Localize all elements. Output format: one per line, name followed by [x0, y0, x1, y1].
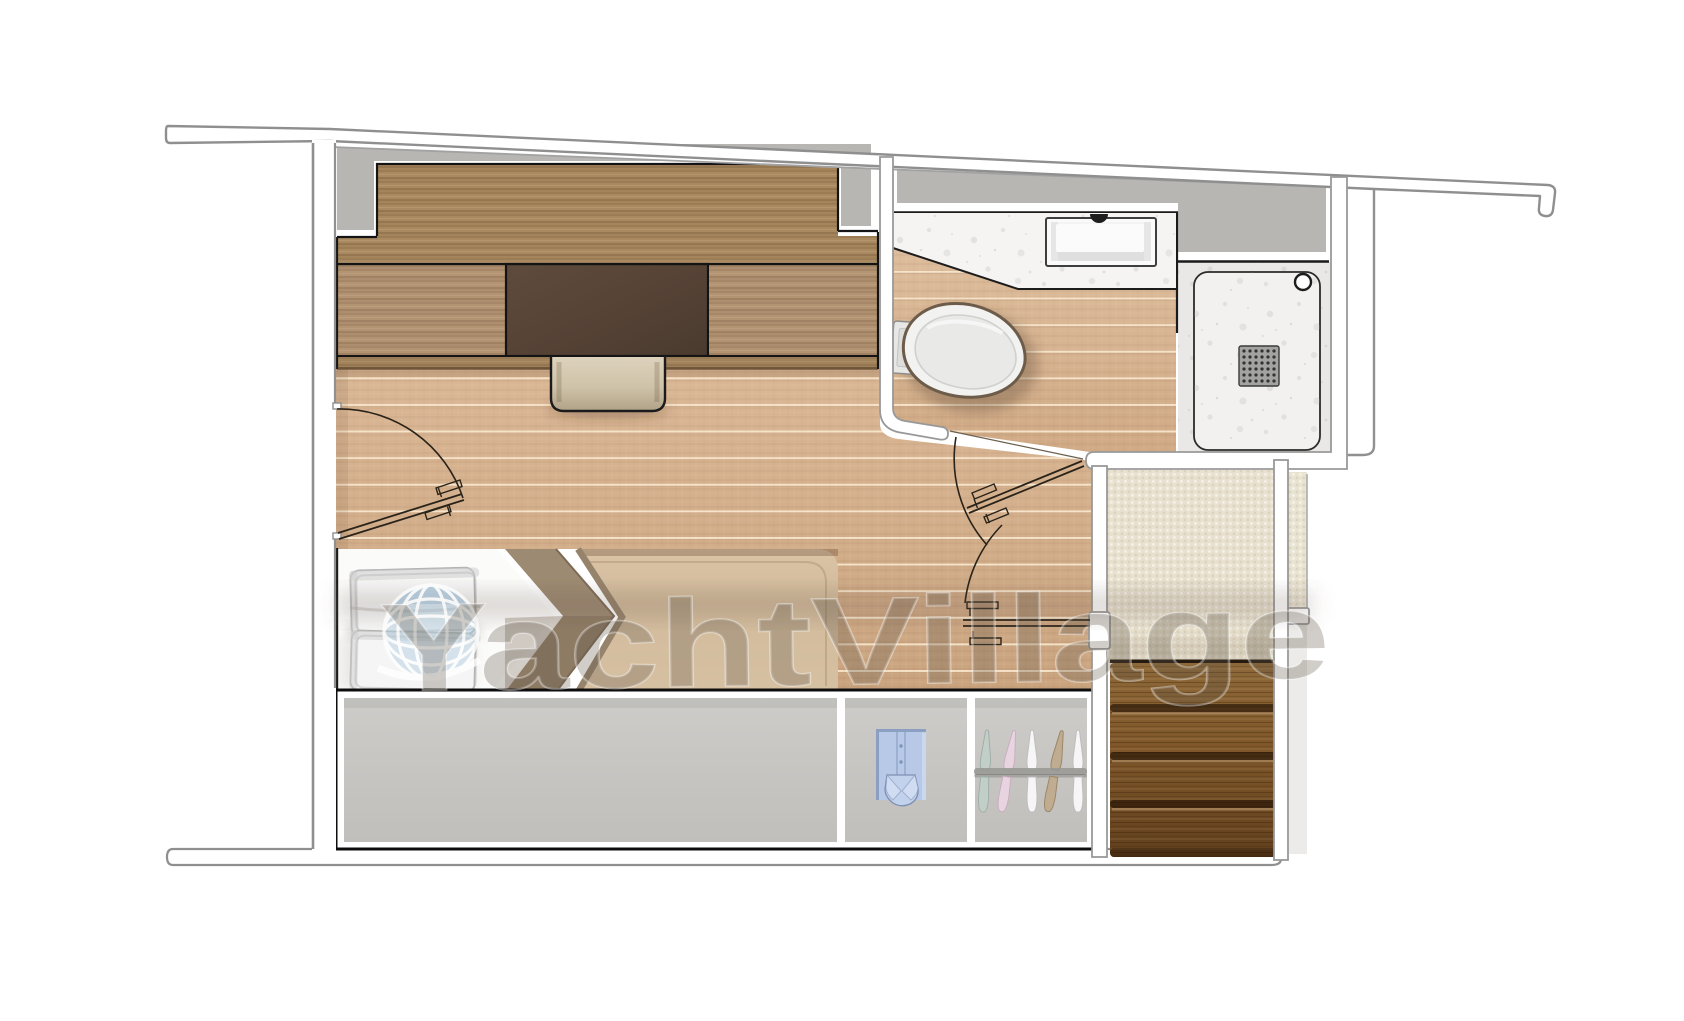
svg-text:YachtVillage: YachtVillage [379, 566, 1331, 717]
